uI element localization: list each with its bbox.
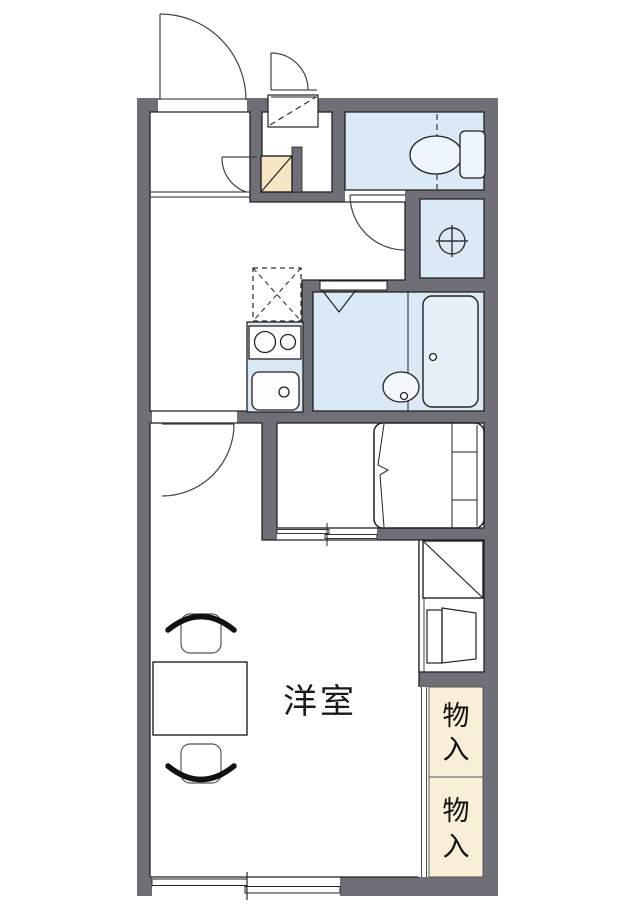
sliding-panel-left xyxy=(277,530,329,534)
bath-door-opening xyxy=(320,281,387,290)
storage-lower-label-char1: 物 xyxy=(443,796,470,827)
table xyxy=(153,662,247,735)
entrance-doorway xyxy=(158,98,247,112)
toilet-doorway xyxy=(345,190,405,202)
stove-burner-large xyxy=(255,332,276,353)
bathtub-faucet-dot xyxy=(430,354,437,361)
kitchen-doorway xyxy=(152,411,237,423)
storage-door-track xyxy=(418,687,429,877)
storage-lower-label-char2: 入 xyxy=(443,832,470,863)
toilet-bowl-icon xyxy=(410,136,462,174)
wall-stub xyxy=(292,147,302,192)
floorplan-page: 洋室 物 入 物 入 xyxy=(0,0,640,916)
toilet-tank-icon xyxy=(460,131,485,178)
bed-outline xyxy=(374,423,484,528)
sink-drain xyxy=(279,387,289,397)
floorplan-canvas: 洋室 物 入 物 入 xyxy=(0,0,640,916)
storage-upper-label-char1: 物 xyxy=(443,701,470,732)
entrance-door-arc xyxy=(160,14,246,100)
main-room-label: 洋室 xyxy=(283,682,357,722)
bathtub-icon xyxy=(423,296,478,407)
stove-burner-small xyxy=(281,335,296,350)
bed xyxy=(374,423,484,528)
outdoor-storage-door-arc xyxy=(271,53,308,90)
sliding-panel-right xyxy=(325,535,377,539)
storage-upper-label-char2: 入 xyxy=(443,735,470,766)
kitchen-sink-icon xyxy=(252,372,299,410)
basin-drain xyxy=(401,393,408,400)
overhead-cabinet xyxy=(268,95,318,127)
